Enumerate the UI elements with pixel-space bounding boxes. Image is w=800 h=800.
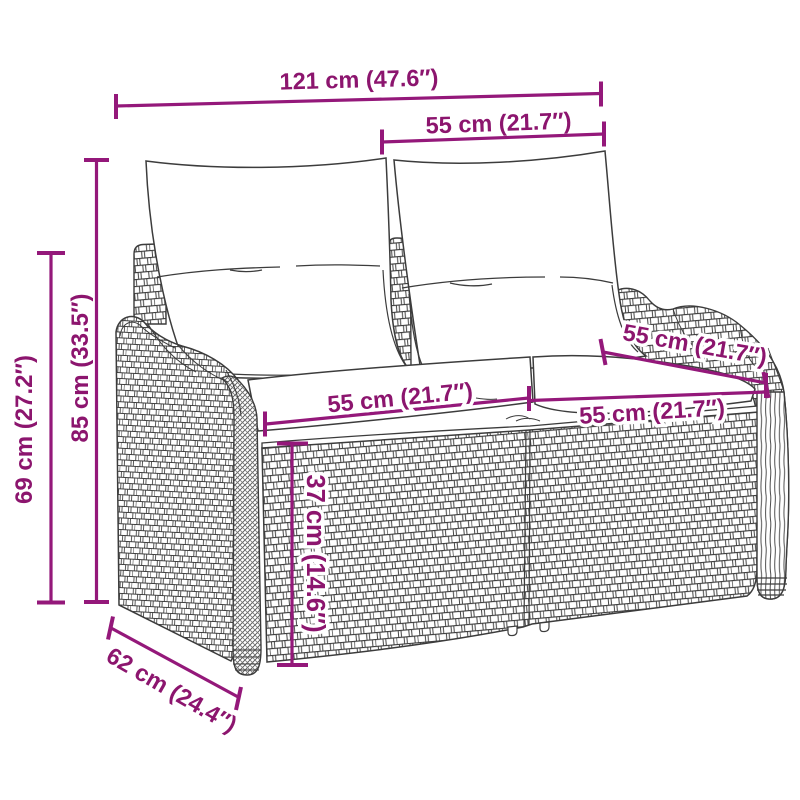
svg-text:121 cm (47.6″): 121 cm (47.6″) bbox=[279, 64, 439, 94]
svg-text:85 cm (33.5″): 85 cm (33.5″) bbox=[67, 294, 94, 443]
svg-text:69 cm (27.2″): 69 cm (27.2″) bbox=[11, 355, 38, 504]
svg-text:55 cm (21.7″): 55 cm (21.7″) bbox=[425, 107, 572, 138]
svg-text:37 cm (14.6″): 37 cm (14.6″) bbox=[301, 474, 329, 632]
